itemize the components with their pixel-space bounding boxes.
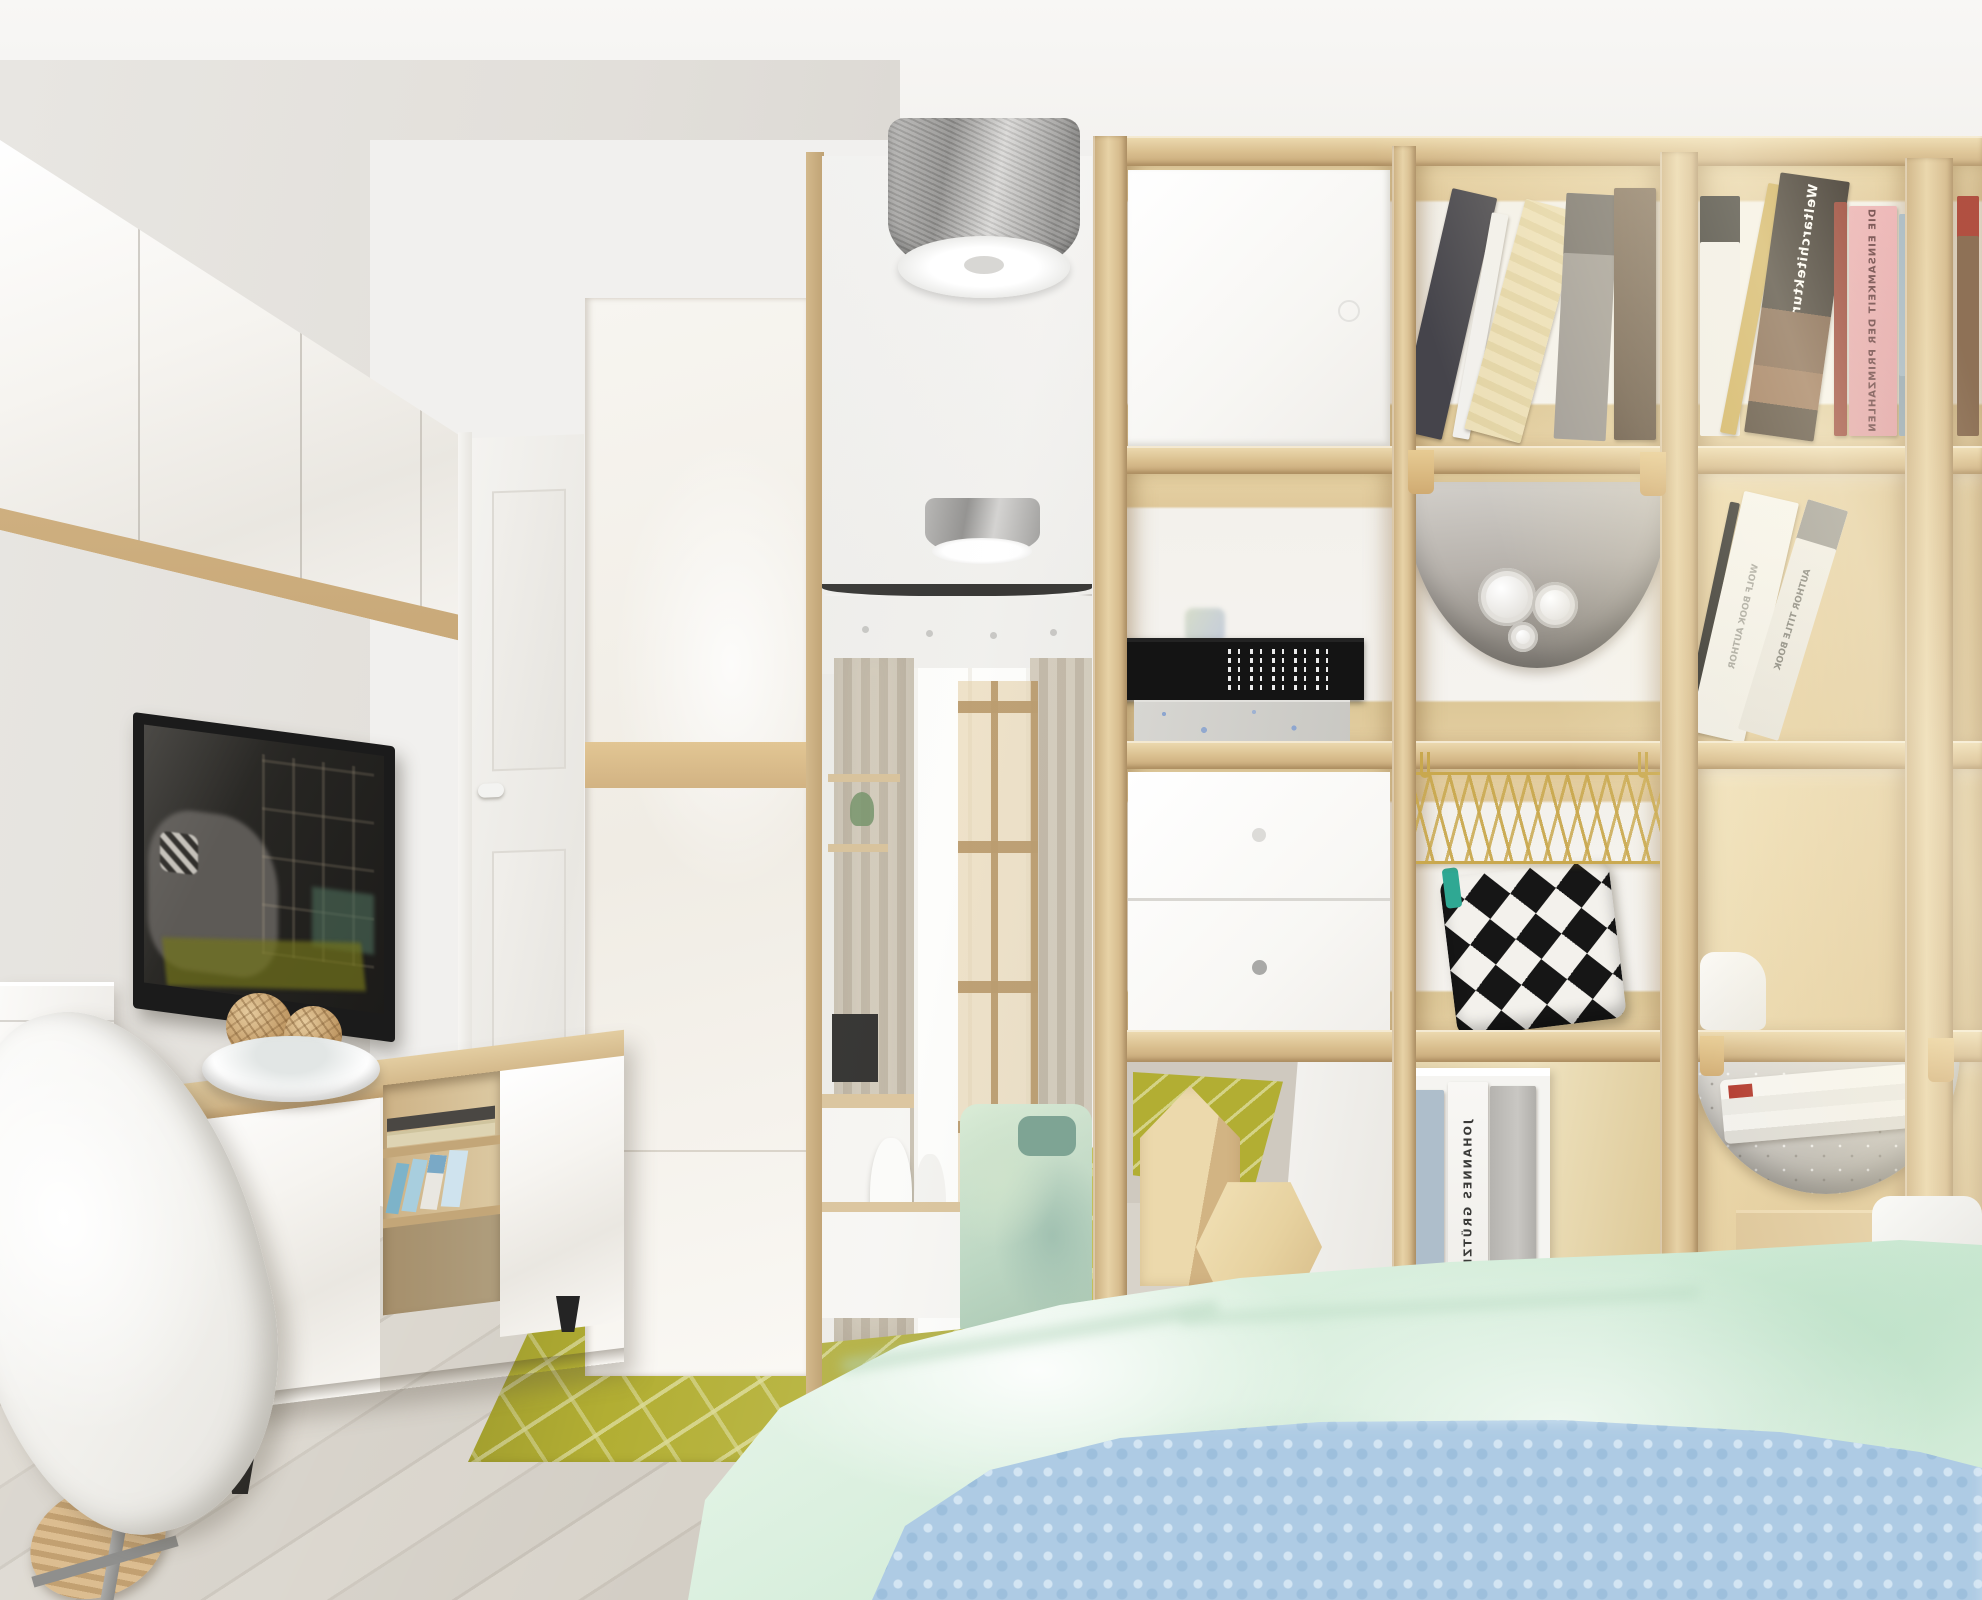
paper-roll xyxy=(1478,568,1536,626)
concrete-pattern-box xyxy=(1134,700,1350,746)
cube-cell xyxy=(1953,474,1982,743)
door-handle xyxy=(478,783,504,798)
basket-hook xyxy=(1638,752,1648,778)
book xyxy=(1834,202,1847,436)
magazine-red-label xyxy=(1728,1084,1753,1099)
white-cushion-sliver xyxy=(1700,952,1766,1030)
shelf-rail xyxy=(1093,741,1982,769)
shelf-rail xyxy=(1093,446,1982,474)
tv-glass-sheen xyxy=(144,724,384,1014)
shelf-post xyxy=(1392,146,1416,1348)
hammock-strap xyxy=(1640,452,1666,496)
sideboard-open-shelf xyxy=(383,1071,500,1315)
shelf-post xyxy=(1093,136,1127,1438)
mirror-glass-tint xyxy=(822,156,1092,1438)
drawer-seam xyxy=(1128,898,1390,901)
aztec-cushion xyxy=(1439,858,1627,1038)
shelf-rail xyxy=(1093,1030,1982,1062)
paper-roll xyxy=(1508,622,1538,652)
paper-roll xyxy=(1532,582,1578,628)
lamp-bulb-plate xyxy=(964,256,1004,274)
room-render: Weltarchitektur DIE EINSAMKEIT DER PRIMZ… xyxy=(0,0,1982,1600)
basket-hook xyxy=(1420,752,1430,778)
decor-bowl xyxy=(202,1036,380,1102)
shelf-post xyxy=(1660,152,1698,1348)
white-drawer-insert xyxy=(1128,772,1390,1030)
drawer-knob xyxy=(1252,960,1267,975)
shelf-shadow-bay xyxy=(383,1214,500,1315)
wardrobe-oak-band xyxy=(585,742,810,788)
tv-screen xyxy=(144,724,384,1014)
gold-wire-basket xyxy=(1412,772,1664,864)
shelf-rail xyxy=(1093,136,1982,166)
shelf-post xyxy=(1905,158,1953,1348)
distant-room-glimpse xyxy=(1185,608,1225,642)
sideboard-right-door xyxy=(500,1056,624,1337)
hammock-strap xyxy=(1408,450,1434,494)
insert-hinge-mark xyxy=(1338,300,1360,322)
mirror-reflection xyxy=(822,156,1092,1438)
book-spine-text: DIE EINSAMKEIT DER PRIMZAHLEN xyxy=(1849,206,1897,436)
hammock-strap xyxy=(1700,1036,1724,1076)
box-typography-marks xyxy=(1228,648,1338,690)
ceiling-lamp xyxy=(888,118,1080,333)
book xyxy=(1614,188,1656,440)
mirror xyxy=(822,156,1092,1438)
black-storage-box xyxy=(1118,638,1364,700)
door-panel-upper xyxy=(492,489,566,772)
drawer-knob xyxy=(1252,828,1266,842)
hammock-strap xyxy=(1928,1038,1954,1082)
cube-cell xyxy=(1953,769,1982,1032)
book xyxy=(1957,196,1979,436)
book-primzahlen: DIE EINSAMKEIT DER PRIMZAHLEN xyxy=(1849,206,1897,436)
